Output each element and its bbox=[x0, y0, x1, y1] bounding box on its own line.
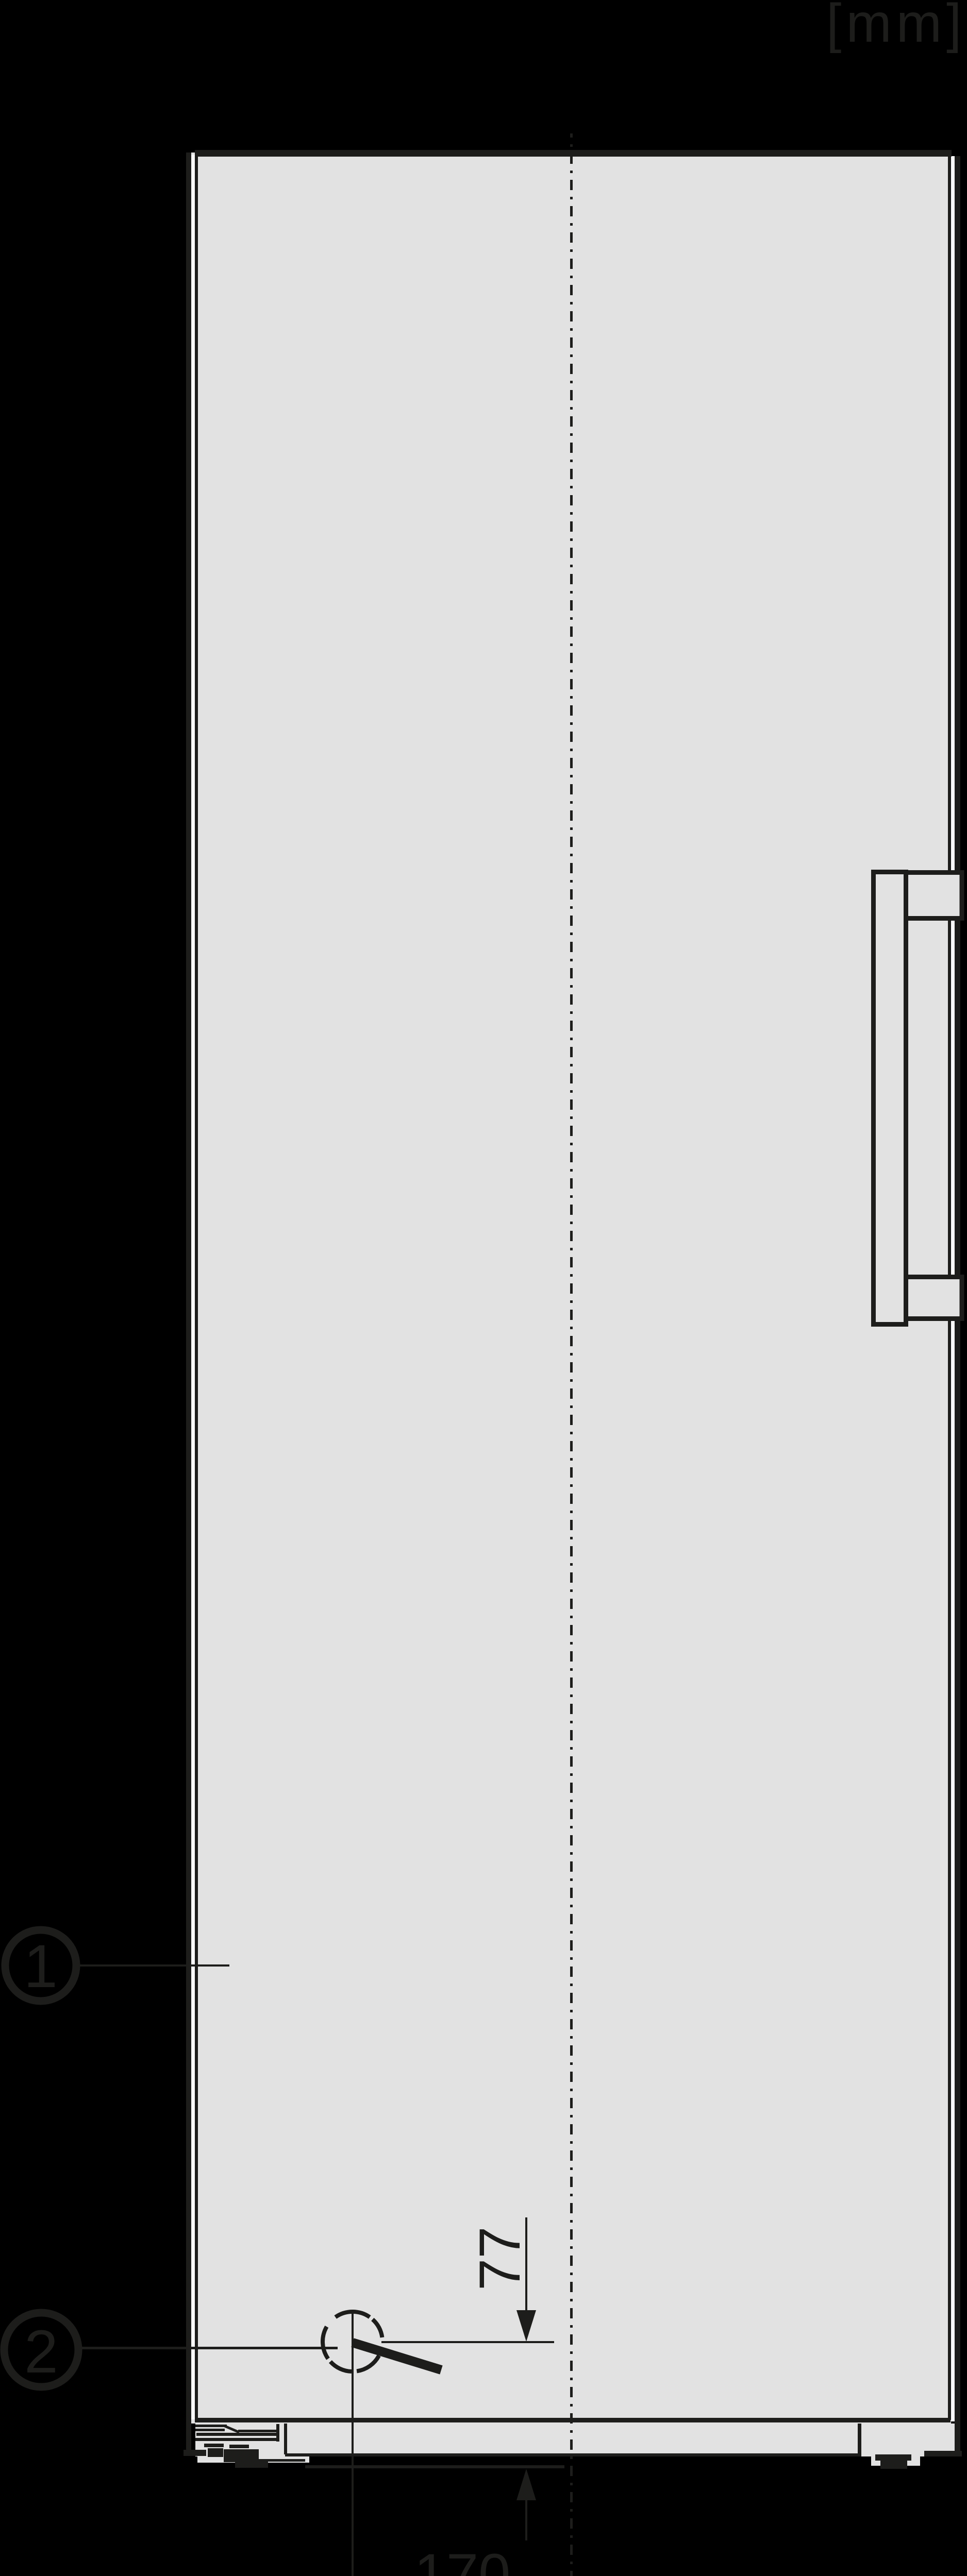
svg-text:[mm]: [mm] bbox=[826, 0, 966, 54]
svg-text:170: 170 bbox=[414, 2542, 511, 2576]
svg-text:1: 1 bbox=[24, 1933, 58, 2001]
svg-text:2: 2 bbox=[24, 2318, 58, 2386]
svg-text:77: 77 bbox=[468, 2226, 532, 2291]
